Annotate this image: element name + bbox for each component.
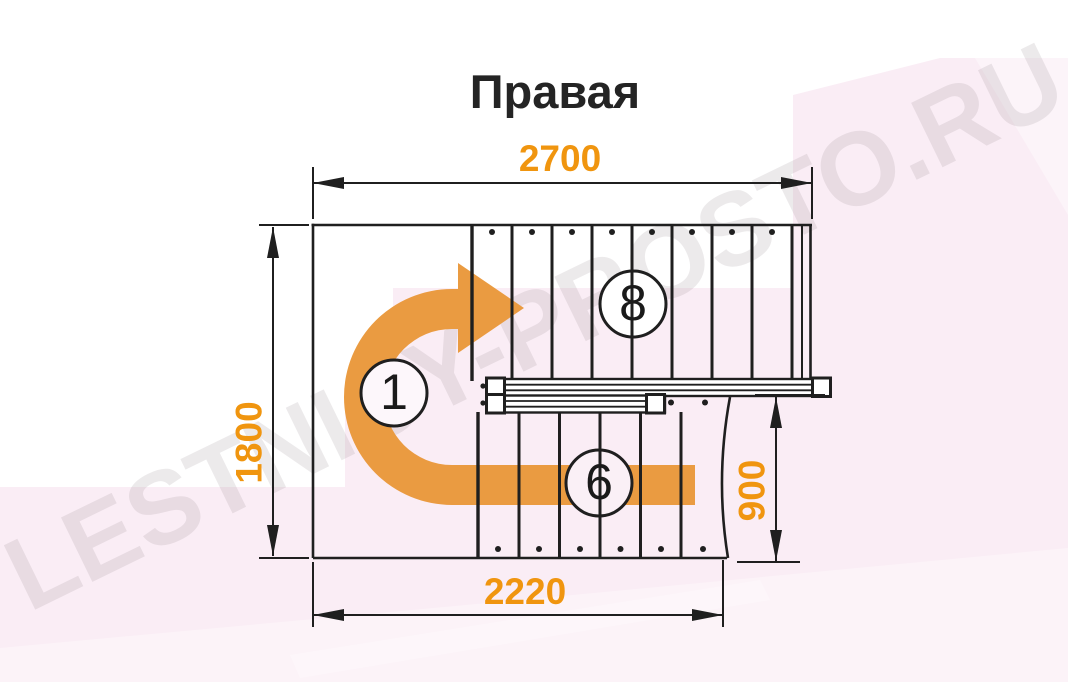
dimension-top-width: 2700 xyxy=(460,140,660,177)
rail-end-cap xyxy=(647,395,665,414)
dimension-right-flight-width: 900 xyxy=(734,391,771,591)
diagram-title: Правая xyxy=(355,64,755,119)
dimension-left-depth: 1800 xyxy=(231,343,268,543)
upper-flight-step-count: 8 xyxy=(600,271,666,337)
rail-end-cap xyxy=(813,378,831,397)
landing-step-label: 1 xyxy=(361,360,427,426)
rail-end-cap xyxy=(487,395,505,414)
lower-flight-step-count: 6 xyxy=(566,450,632,516)
dimension-bottom-width: 2220 xyxy=(425,573,625,610)
staircase-plan-diagram: LESTNICY-PROSTO.RU xyxy=(0,0,1068,682)
lower-flight-curved-edge xyxy=(722,397,730,558)
